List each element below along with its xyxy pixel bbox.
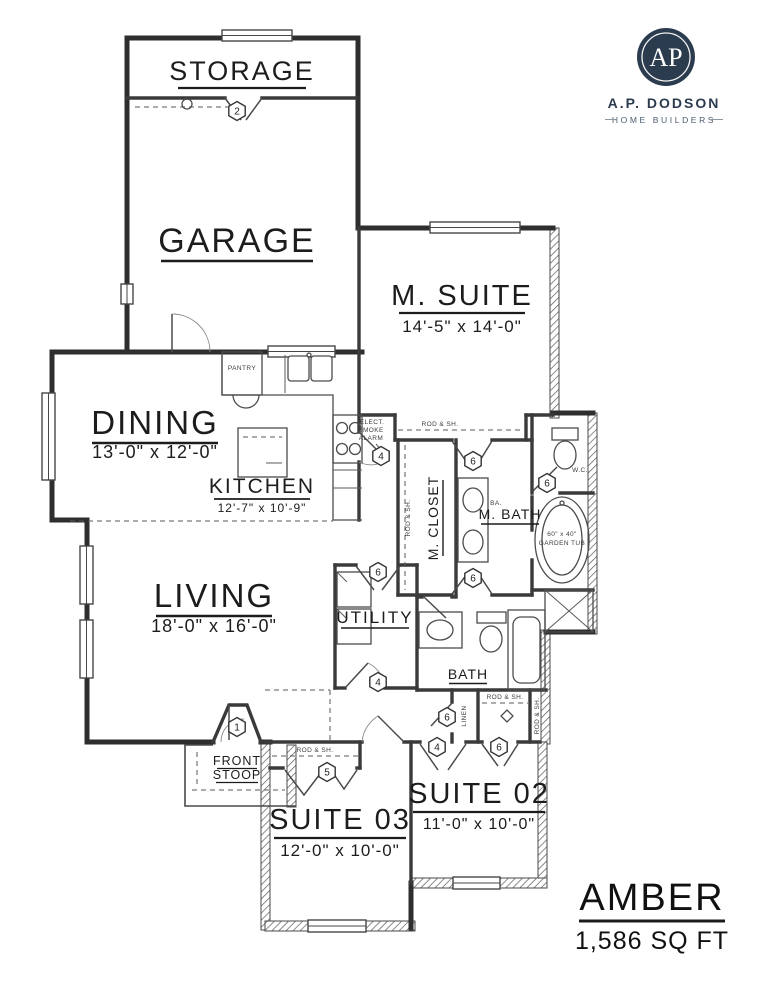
svg-text:6: 6 bbox=[470, 457, 476, 468]
floor-plan-page: FRONT STOOP PANTRY bbox=[0, 0, 768, 994]
living-window-1 bbox=[80, 546, 93, 604]
logo-tagline: HOME BUILDERS bbox=[612, 115, 716, 125]
svg-text:SUITE 03: SUITE 03 bbox=[269, 804, 411, 836]
m-closet-rod: ROD & SH. bbox=[405, 445, 412, 590]
svg-text:2: 2 bbox=[234, 107, 240, 118]
door-marker-suite02-entry: 4 bbox=[429, 738, 445, 757]
room-label-storage: STORAGE bbox=[169, 56, 315, 88]
plan-name: AMBER bbox=[579, 877, 724, 919]
suite02-closet: ROD & SH. ROD & SH. bbox=[482, 694, 541, 734]
kitchen-dims: 12'-7" x 10'-9" bbox=[218, 501, 307, 515]
room-label-m-closet: M. CLOSET bbox=[425, 476, 443, 560]
svg-text:DINING: DINING bbox=[91, 404, 219, 441]
room-label-utility: UTILITY bbox=[336, 608, 413, 628]
garden-tub-name: GARDEN TUB bbox=[539, 540, 586, 547]
suite02-dims: 11'-0" x 10'-0" bbox=[423, 816, 535, 833]
room-label-suite03: SUITE 03 12'-0" x 10'-0" bbox=[269, 804, 411, 860]
room-label-living: LIVING 18'-0" x 16'-0" bbox=[151, 577, 277, 636]
builder-logo: AP A.P. DODSON HOME BUILDERS bbox=[605, 28, 723, 125]
svg-text:LIVING: LIVING bbox=[154, 577, 274, 614]
garage-window bbox=[121, 284, 133, 304]
door-marker-wc: 6 bbox=[539, 474, 555, 493]
storage-window bbox=[222, 30, 292, 41]
door-marker-utility-hall: 4 bbox=[370, 673, 386, 692]
pantry: PANTRY bbox=[222, 352, 262, 408]
smoke-alarm-line2: SMOKE bbox=[358, 427, 384, 434]
svg-text:6: 6 bbox=[444, 713, 450, 724]
floorplan-svg: FRONT STOOP PANTRY bbox=[0, 0, 768, 994]
wc-label: W.C. bbox=[572, 467, 588, 474]
svg-text:6: 6 bbox=[544, 479, 550, 490]
front-stoop-label-2: STOOP bbox=[213, 768, 262, 782]
svg-text:GARAGE: GARAGE bbox=[158, 222, 315, 260]
svg-text:4: 4 bbox=[434, 743, 440, 754]
dining-dims: 13'-0" x 12'-0" bbox=[92, 442, 218, 462]
plan-title: AMBER 1,586 SQ FT bbox=[575, 877, 729, 955]
svg-text:6: 6 bbox=[470, 574, 476, 585]
suite03-window bbox=[308, 920, 366, 932]
living-dims: 18'-0" x 16'-0" bbox=[151, 616, 277, 636]
door-marker-linen: 6 bbox=[439, 708, 455, 727]
garden-tub-size: 60" x 40" bbox=[547, 531, 577, 538]
door-marker-utility: 6 bbox=[370, 563, 386, 582]
kitchen-island bbox=[238, 428, 287, 477]
svg-text:UTILITY: UTILITY bbox=[336, 608, 413, 627]
svg-text:SUITE 02: SUITE 02 bbox=[408, 778, 550, 810]
ba-label: BA. bbox=[490, 500, 502, 507]
suite02-window bbox=[453, 877, 500, 889]
suite03-closet-rod-label: ROD & SH. bbox=[297, 747, 334, 754]
water-closet-toilet: W.C. bbox=[552, 428, 588, 474]
m-suite-closet: ROD & SH. bbox=[398, 421, 524, 430]
svg-text:1: 1 bbox=[234, 723, 240, 734]
m-suite-window bbox=[430, 222, 520, 233]
room-label-m-suite: M. SUITE 14'-5" x 14'-0" bbox=[391, 280, 533, 336]
room-label-kitchen: KITCHEN 12'-7" x 10'-9" bbox=[209, 475, 315, 515]
smoke-alarm-line1: ELECT. bbox=[360, 419, 384, 426]
bath-vanity bbox=[419, 612, 462, 648]
suite02-closet-rod-label-2: ROD & SH. bbox=[534, 698, 541, 735]
svg-text:5: 5 bbox=[324, 768, 330, 779]
kitchen-sink bbox=[288, 353, 332, 381]
svg-text:6: 6 bbox=[496, 743, 502, 754]
room-label-suite02: SUITE 02 11'-0" x 10'-0" bbox=[408, 778, 550, 833]
garden-tub: 60" x 40" GARDEN TUB bbox=[535, 497, 589, 583]
living-window-2 bbox=[80, 620, 93, 678]
svg-text:6: 6 bbox=[375, 568, 381, 579]
door-marker-suite02-closet: 6 bbox=[491, 738, 507, 757]
svg-text:KITCHEN: KITCHEN bbox=[209, 475, 315, 498]
door-marker-m-suite-entry: 6 bbox=[465, 452, 481, 471]
linen-closet: LINEN bbox=[461, 705, 468, 726]
bath-toilet bbox=[477, 612, 506, 652]
room-label-bath: BATH bbox=[448, 666, 488, 684]
front-stoop: FRONT STOOP bbox=[185, 745, 296, 806]
room-label-dining: DINING 13'-0" x 12'-0" bbox=[91, 404, 219, 462]
svg-text:4: 4 bbox=[375, 678, 381, 689]
svg-text:M. BATH: M. BATH bbox=[479, 506, 542, 522]
door-marker-garage-storage: 2 bbox=[229, 102, 245, 121]
suite02-closet-rod-label: ROD & SH. bbox=[487, 694, 524, 701]
dining-window bbox=[42, 393, 55, 480]
linen-label: LINEN bbox=[461, 705, 468, 726]
shower bbox=[545, 590, 593, 632]
suite03-dims: 12'-0" x 10'-0" bbox=[280, 841, 400, 860]
pantry-label: PANTRY bbox=[228, 365, 256, 372]
m-closet-rod-label: ROD & SH. bbox=[405, 500, 412, 537]
door-marker-front-door: 1 bbox=[229, 718, 245, 737]
door-marker-suite03-closet: 5 bbox=[319, 763, 335, 782]
garage-kitchen-door bbox=[172, 314, 210, 352]
m-suite-dims: 14'-5" x 14'-0" bbox=[402, 317, 522, 336]
logo-monogram: AP bbox=[649, 43, 682, 72]
closet-details: ROD & SH. ROD & SH. ROD & SH. ROD & SH. … bbox=[272, 421, 541, 756]
door-marker-kitchen-hall: 4 bbox=[373, 447, 389, 466]
suite03-closet: ROD & SH. bbox=[272, 747, 358, 756]
suite03-entry-door bbox=[362, 716, 404, 742]
svg-text:M. CLOSET: M. CLOSET bbox=[425, 476, 441, 560]
logo-company-name: A.P. DODSON bbox=[608, 95, 721, 111]
m-suite-closet-rod-label: ROD & SH. bbox=[422, 421, 459, 428]
svg-text:M. SUITE: M. SUITE bbox=[391, 280, 533, 312]
bath-tub bbox=[508, 610, 545, 690]
svg-text:4: 4 bbox=[378, 452, 384, 463]
front-stoop-label-1: FRONT bbox=[213, 754, 261, 768]
svg-text:STORAGE: STORAGE bbox=[169, 56, 315, 86]
bath-door bbox=[424, 597, 446, 618]
door-marker-m-closet: 6 bbox=[465, 569, 481, 588]
room-label-garage: GARAGE bbox=[158, 222, 315, 261]
svg-text:BATH: BATH bbox=[448, 666, 488, 682]
plan-area: 1,586 SQ FT bbox=[575, 927, 729, 955]
